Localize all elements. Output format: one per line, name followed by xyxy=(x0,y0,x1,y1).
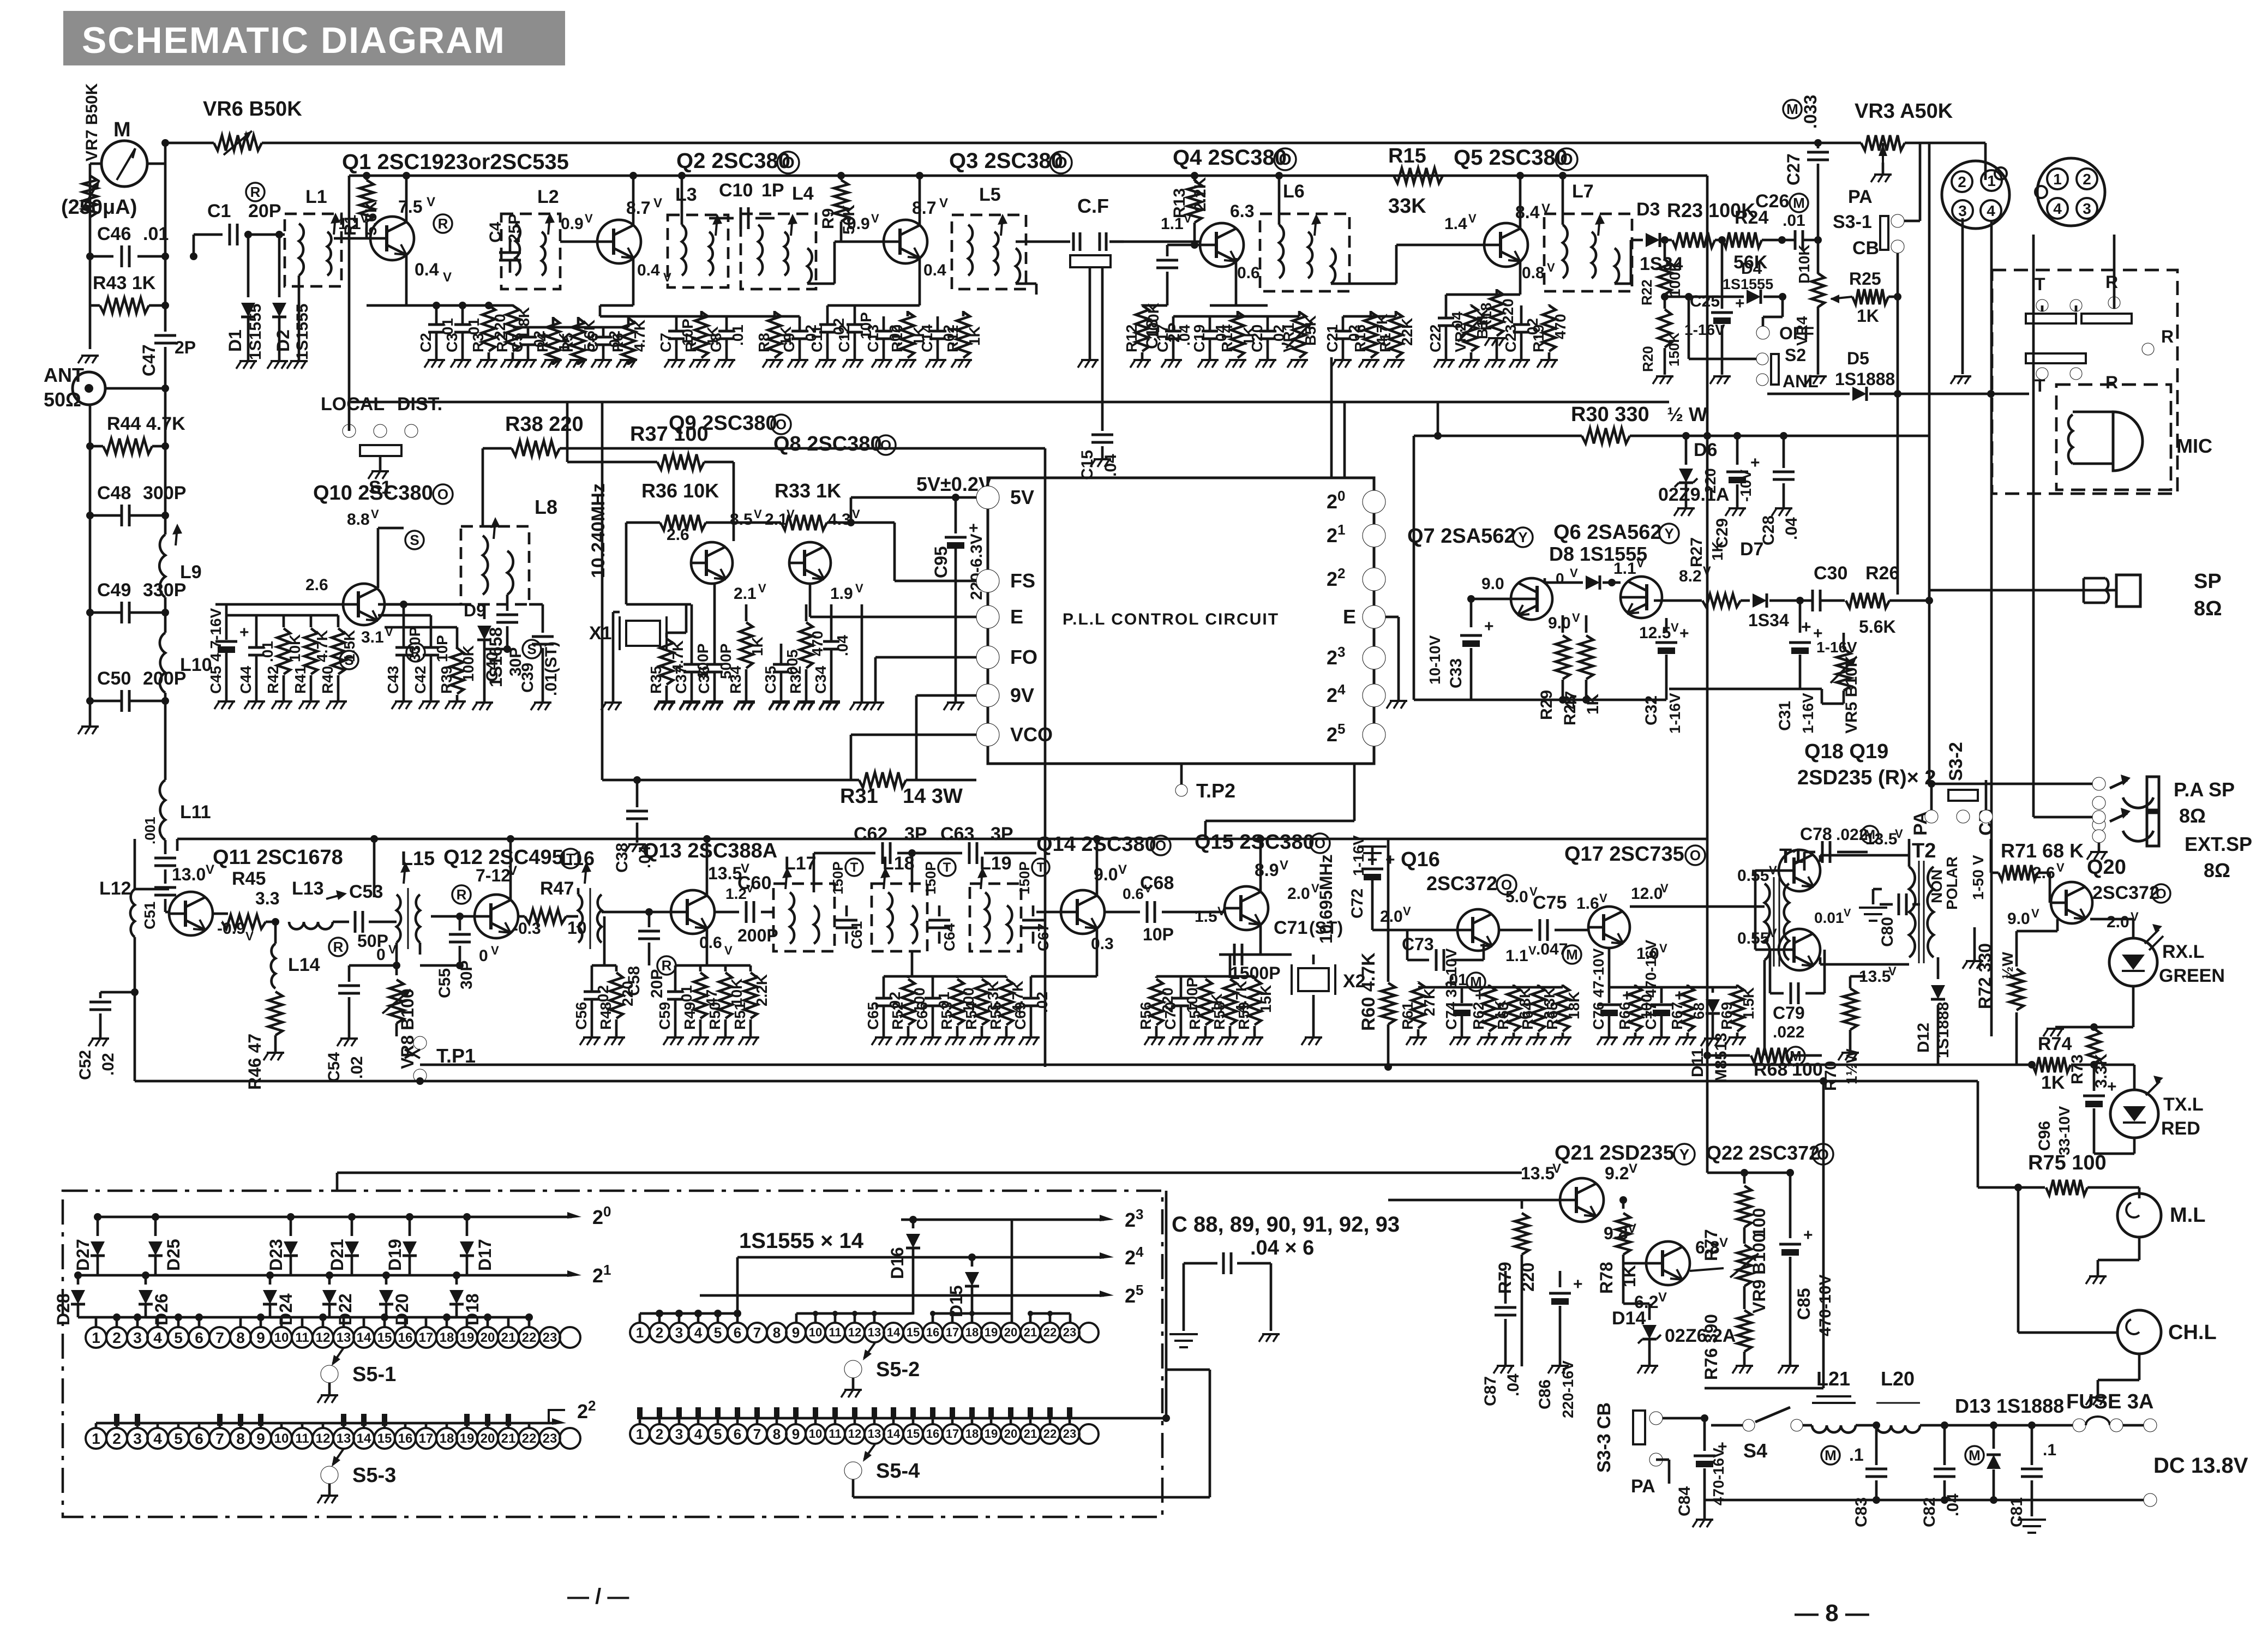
svg-text:16: 16 xyxy=(926,1427,939,1441)
svg-text:L13: L13 xyxy=(292,878,324,899)
svg-text:D21: D21 xyxy=(327,1239,347,1271)
svg-text:17: 17 xyxy=(419,1431,434,1446)
svg-text:C26: C26 xyxy=(1755,191,1789,212)
svg-text:D13 1S1888: D13 1S1888 xyxy=(1955,1395,2064,1417)
svg-text:V: V xyxy=(371,507,379,521)
svg-text:15: 15 xyxy=(377,1330,392,1345)
svg-text:4.3: 4.3 xyxy=(828,511,851,529)
svg-text:C44: C44 xyxy=(237,665,254,694)
svg-text:3.1: 3.1 xyxy=(361,628,384,646)
svg-text:L12: L12 xyxy=(99,878,131,899)
svg-text:C59: C59 xyxy=(656,1002,673,1030)
svg-text:V: V xyxy=(1528,944,1537,957)
svg-text:R: R xyxy=(457,886,467,903)
svg-text:0.55: 0.55 xyxy=(1737,929,1769,947)
svg-text:2.0: 2.0 xyxy=(2107,913,2129,931)
svg-text:C58: C58 xyxy=(625,966,643,996)
svg-text:3P: 3P xyxy=(991,824,1013,844)
svg-text:.04: .04 xyxy=(834,635,851,656)
svg-text:L3: L3 xyxy=(675,184,697,205)
svg-text:R: R xyxy=(438,215,448,232)
svg-text:0.4: 0.4 xyxy=(923,261,946,279)
svg-text:18K: 18K xyxy=(1565,992,1582,1019)
svg-text:4: 4 xyxy=(694,1426,703,1442)
svg-text:1.5K: 1.5K xyxy=(341,630,358,662)
svg-text:V: V xyxy=(1403,904,1411,918)
svg-text:R55: R55 xyxy=(987,1002,1004,1030)
svg-text:220: 220 xyxy=(1499,298,1516,324)
svg-text:20: 20 xyxy=(481,1330,495,1345)
svg-text:+: + xyxy=(1573,1275,1583,1293)
svg-text:R72 330: R72 330 xyxy=(1975,943,1995,1009)
svg-text:13.5: 13.5 xyxy=(1521,1163,1555,1183)
svg-text:R62: R62 xyxy=(1470,1002,1487,1030)
svg-text:C13: C13 xyxy=(865,325,881,352)
svg-text:R45: R45 xyxy=(232,868,266,889)
svg-text:C19: C19 xyxy=(1191,325,1208,352)
svg-text:½ W: ½ W xyxy=(1667,403,1707,425)
svg-text:R71 68 K: R71 68 K xyxy=(2001,839,2084,862)
svg-text:V: V xyxy=(585,212,593,225)
svg-text:V: V xyxy=(852,507,860,521)
svg-text:14: 14 xyxy=(887,1325,901,1339)
svg-text:S3-1: S3-1 xyxy=(1833,212,1872,232)
svg-text:8.8: 8.8 xyxy=(347,511,370,529)
svg-text:22: 22 xyxy=(522,1330,537,1345)
svg-text:SCHEMATIC DIAGRAM: SCHEMATIC DIAGRAM xyxy=(82,20,506,61)
svg-text:.02: .02 xyxy=(1034,992,1051,1013)
svg-text:C38: C38 xyxy=(613,843,631,873)
svg-text:8: 8 xyxy=(236,1430,245,1447)
svg-text:M: M xyxy=(1786,101,1798,117)
svg-text:R73: R73 xyxy=(2068,1054,2086,1084)
svg-text:1S34: 1S34 xyxy=(1748,610,1789,630)
svg-text:Q7 2SA562: Q7 2SA562 xyxy=(1407,525,1516,548)
svg-text:6.3: 6.3 xyxy=(1230,201,1254,221)
svg-text:470-10V: 470-10V xyxy=(1816,1275,1834,1336)
svg-text:DIST.: DIST. xyxy=(397,394,442,415)
svg-text:+: + xyxy=(1750,454,1760,472)
svg-text:20: 20 xyxy=(1004,1427,1017,1441)
svg-text:0.4: 0.4 xyxy=(637,261,660,279)
svg-text:3P: 3P xyxy=(904,824,927,844)
svg-text:C5: C5 xyxy=(509,333,526,352)
svg-text:3: 3 xyxy=(133,1329,142,1346)
svg-text:14: 14 xyxy=(357,1431,371,1446)
svg-text:22: 22 xyxy=(522,1431,537,1446)
svg-text:8.5: 8.5 xyxy=(730,511,753,529)
svg-text:0: 0 xyxy=(1556,570,1564,587)
svg-text:10P: 10P xyxy=(434,635,451,662)
svg-text:30P: 30P xyxy=(458,961,476,989)
svg-text:V: V xyxy=(443,270,452,285)
svg-text:L20: L20 xyxy=(1881,1367,1915,1390)
svg-text:R32: R32 xyxy=(787,666,804,694)
svg-text:22K: 22K xyxy=(1399,318,1415,346)
svg-text:11: 11 xyxy=(829,1427,841,1441)
svg-text:C72: C72 xyxy=(1348,889,1366,919)
svg-text:D10K: D10K xyxy=(1796,244,1813,284)
svg-text:C63: C63 xyxy=(940,824,974,844)
svg-text:10K: 10K xyxy=(286,634,303,662)
svg-text:1S1888: 1S1888 xyxy=(1835,369,1895,389)
svg-text:470: 470 xyxy=(1552,314,1569,339)
svg-text:9: 9 xyxy=(256,1430,265,1447)
svg-text:C62: C62 xyxy=(854,824,887,844)
svg-text:S4: S4 xyxy=(1743,1439,1767,1462)
svg-text:L11: L11 xyxy=(180,802,211,823)
svg-text:1.4: 1.4 xyxy=(1444,215,1467,233)
svg-text:V: V xyxy=(1844,907,1851,919)
svg-text:V: V xyxy=(1658,1290,1667,1305)
svg-text:R44 4.7K: R44 4.7K xyxy=(107,413,185,434)
svg-text:-10V: -10V xyxy=(1737,470,1754,502)
svg-text:R22: R22 xyxy=(1639,279,1655,305)
svg-text:1K: 1K xyxy=(1857,306,1879,326)
svg-text:2.0: 2.0 xyxy=(1380,908,1403,926)
svg-text:21: 21 xyxy=(1024,1325,1037,1339)
svg-text:0.3: 0.3 xyxy=(1091,935,1114,953)
svg-text:FO: FO xyxy=(1010,646,1037,668)
svg-text:Q22 2SC372: Q22 2SC372 xyxy=(1706,1142,1820,1164)
svg-text:R: R xyxy=(2105,373,2118,392)
svg-text:14: 14 xyxy=(887,1427,901,1441)
svg-text:1.1: 1.1 xyxy=(1505,947,1528,965)
svg-text:470-16V: 470-16V xyxy=(1710,1448,1727,1505)
svg-text:VR4: VR4 xyxy=(1793,316,1810,346)
svg-text:17: 17 xyxy=(419,1330,434,1345)
svg-text:10: 10 xyxy=(809,1325,822,1339)
svg-text:3: 3 xyxy=(133,1430,142,1447)
svg-text:R: R xyxy=(662,957,672,974)
svg-text:M: M xyxy=(1793,195,1805,211)
svg-text:20P: 20P xyxy=(248,201,281,221)
svg-text:S: S xyxy=(410,532,419,548)
svg-text:VR3 A50K: VR3 A50K xyxy=(1855,100,1953,123)
svg-text:V: V xyxy=(1659,941,1667,955)
svg-text:R43 1K: R43 1K xyxy=(93,273,156,293)
svg-text:R8: R8 xyxy=(755,333,772,352)
svg-text:R54: R54 xyxy=(963,1001,980,1030)
svg-text:C14: C14 xyxy=(919,324,935,352)
svg-text:220: 220 xyxy=(1702,468,1719,494)
svg-text:T: T xyxy=(2035,376,2045,395)
svg-text:100K: 100K xyxy=(1666,261,1683,297)
svg-text:R34: R34 xyxy=(727,665,744,694)
svg-text:V: V xyxy=(1280,858,1288,873)
svg-text:0.9: 0.9 xyxy=(561,215,584,233)
svg-text:O: O xyxy=(1315,835,1325,851)
svg-text:50Ω: 50Ω xyxy=(44,388,81,411)
svg-text:4: 4 xyxy=(153,1430,162,1447)
svg-text:L14: L14 xyxy=(288,955,320,975)
svg-text:5: 5 xyxy=(714,1324,722,1341)
svg-text:18: 18 xyxy=(965,1427,979,1441)
svg-text:V: V xyxy=(206,862,214,877)
svg-text:220-16V: 220-16V xyxy=(1559,1360,1576,1418)
svg-text:C61: C61 xyxy=(848,921,865,949)
svg-text:12: 12 xyxy=(848,1325,861,1339)
svg-text:T.P2: T.P2 xyxy=(1196,779,1235,802)
svg-text:D27: D27 xyxy=(73,1239,93,1271)
svg-text:V: V xyxy=(1552,1161,1561,1176)
svg-text:2.1: 2.1 xyxy=(765,511,788,529)
svg-text:R69: R69 xyxy=(1718,1002,1735,1030)
svg-text:EXT.SP: EXT.SP xyxy=(2185,833,2252,855)
svg-text:R: R xyxy=(2105,272,2118,292)
svg-text:23: 23 xyxy=(543,1330,557,1345)
svg-text:V: V xyxy=(2131,910,2139,923)
svg-text:100: 100 xyxy=(1749,1208,1769,1237)
svg-text:C52: C52 xyxy=(76,1050,94,1080)
svg-text:13.5: 13.5 xyxy=(708,863,742,883)
svg-text:O: O xyxy=(1054,154,1067,172)
svg-text:9V: 9V xyxy=(1010,684,1034,706)
svg-text:C17: C17 xyxy=(1154,325,1171,352)
svg-text:D3: D3 xyxy=(1636,199,1660,220)
svg-text:15: 15 xyxy=(907,1325,920,1339)
svg-text:8.7: 8.7 xyxy=(912,198,936,218)
svg-text:— 8 —: — 8 — xyxy=(1795,1600,1869,1627)
svg-text:C69: C69 xyxy=(1012,1002,1029,1030)
svg-text:R7: R7 xyxy=(682,333,699,352)
svg-text:Q8 2SC380: Q8 2SC380 xyxy=(773,433,882,455)
svg-text:.001: .001 xyxy=(142,817,158,844)
svg-text:R: R xyxy=(411,644,421,661)
svg-text:12.0: 12.0 xyxy=(1631,885,1663,903)
svg-text:R33 1K: R33 1K xyxy=(775,479,841,502)
svg-text:15: 15 xyxy=(907,1427,920,1441)
svg-text:D19: D19 xyxy=(385,1239,405,1271)
svg-text:C27: C27 xyxy=(1784,153,1803,185)
svg-text:PA: PA xyxy=(1848,187,1873,207)
svg-text:12: 12 xyxy=(316,1431,331,1446)
svg-text:2.6: 2.6 xyxy=(2032,864,2055,882)
svg-text:C84: C84 xyxy=(1676,1486,1694,1516)
svg-text:14: 14 xyxy=(357,1330,371,1345)
svg-text:15K: 15K xyxy=(1257,985,1274,1013)
svg-text:V: V xyxy=(1468,212,1477,225)
svg-text:7: 7 xyxy=(215,1430,224,1447)
svg-text:10.695MHz: 10.695MHz xyxy=(1316,854,1336,944)
svg-text:11: 11 xyxy=(829,1325,841,1339)
svg-text:R15: R15 xyxy=(1388,145,1426,167)
svg-text:V: V xyxy=(1769,926,1777,940)
svg-text:D28: D28 xyxy=(53,1293,73,1325)
svg-text:C25: C25 xyxy=(1690,292,1720,310)
svg-text:2: 2 xyxy=(1958,173,1966,190)
svg-text:C35: C35 xyxy=(762,666,779,694)
svg-text:22: 22 xyxy=(1043,1325,1057,1339)
svg-text:1K: 1K xyxy=(749,637,766,656)
svg-text:C71: C71 xyxy=(1274,917,1307,938)
svg-text:D14: D14 xyxy=(1612,1308,1646,1329)
svg-text:9: 9 xyxy=(792,1324,800,1341)
svg-text:R35: R35 xyxy=(647,666,664,694)
svg-text:R74: R74 xyxy=(2038,1034,2072,1054)
svg-text:+: + xyxy=(1484,617,1494,635)
svg-text:V: V xyxy=(1118,862,1127,877)
svg-text:D23: D23 xyxy=(266,1239,286,1271)
svg-text:1: 1 xyxy=(636,1426,644,1442)
svg-text:Q17 2SC735: Q17 2SC735 xyxy=(1564,843,1684,866)
svg-text:P.L.L CONTROL CIRCUIT: P.L.L CONTROL CIRCUIT xyxy=(1063,610,1279,628)
svg-text:O: O xyxy=(2156,886,2166,902)
svg-text:C54: C54 xyxy=(325,1052,343,1082)
svg-text:V: V xyxy=(491,944,499,957)
svg-text:V: V xyxy=(939,196,948,211)
svg-text:C.F: C.F xyxy=(1077,195,1109,217)
svg-text:R20: R20 xyxy=(1640,346,1656,372)
svg-text:V: V xyxy=(1629,1161,1637,1176)
svg-text:SP: SP xyxy=(2194,570,2222,593)
svg-text:R16: R16 xyxy=(1352,325,1369,352)
svg-text:FUSE 3A: FUSE 3A xyxy=(2066,1390,2153,1413)
svg-text:9.0: 9.0 xyxy=(1481,575,1504,593)
svg-text:C47: C47 xyxy=(139,344,159,376)
svg-text:150P: 150P xyxy=(830,861,846,895)
svg-text:Q1 2SC1923or2SC535: Q1 2SC1923or2SC535 xyxy=(342,150,569,174)
svg-text:S3-2: S3-2 xyxy=(1946,742,1966,781)
svg-text:10-10V: 10-10V xyxy=(1426,635,1443,685)
svg-text:POLAR: POLAR xyxy=(1943,856,1960,910)
svg-text:8.2: 8.2 xyxy=(1679,567,1702,585)
svg-text:C22: C22 xyxy=(1427,325,1444,352)
svg-text:9.2: 9.2 xyxy=(1605,1163,1629,1183)
svg-text:10: 10 xyxy=(274,1330,289,1345)
svg-text:5.6K: 5.6K xyxy=(1859,617,1896,637)
svg-text:2.6: 2.6 xyxy=(305,576,328,594)
svg-text:1: 1 xyxy=(2053,171,2062,188)
svg-text:C76 47-10V: C76 47-10V xyxy=(1590,948,1607,1030)
svg-text:O: O xyxy=(1690,847,1701,863)
svg-text:C33: C33 xyxy=(1447,658,1465,688)
svg-text:C1: C1 xyxy=(207,201,231,221)
svg-text:Q16: Q16 xyxy=(1401,848,1440,871)
svg-text:18: 18 xyxy=(440,1431,454,1446)
svg-text:R59: R59 xyxy=(1235,1002,1252,1030)
svg-text:R12: R12 xyxy=(1123,325,1140,352)
svg-text:ANL: ANL xyxy=(1783,371,1819,391)
svg-text:1-16V: 1-16V xyxy=(1684,321,1725,338)
svg-text:Q9 2SC380: Q9 2SC380 xyxy=(669,412,777,435)
svg-text:RX.L: RX.L xyxy=(2162,941,2204,962)
svg-text:R26: R26 xyxy=(1865,563,1899,584)
svg-text:D20: D20 xyxy=(392,1293,412,1325)
svg-text:R6: R6 xyxy=(609,333,626,352)
svg-text:+: + xyxy=(1803,1226,1813,1244)
svg-text:D12: D12 xyxy=(1915,1023,1933,1053)
svg-text:C15: C15 xyxy=(1078,450,1096,480)
svg-text:VR5 B10K: VR5 B10K xyxy=(1843,655,1861,734)
svg-text:1.9: 1.9 xyxy=(830,585,853,603)
svg-text:DC 13.8V: DC 13.8V xyxy=(2153,1454,2248,1478)
svg-text:33K: 33K xyxy=(1388,195,1426,218)
svg-text:VR2: VR2 xyxy=(1452,323,1469,352)
svg-text:C64: C64 xyxy=(941,923,958,951)
svg-text:S5-3: S5-3 xyxy=(352,1464,396,1487)
svg-text:Q20: Q20 xyxy=(2087,856,2126,879)
svg-text:L18: L18 xyxy=(883,853,915,874)
svg-text:13: 13 xyxy=(337,1330,351,1345)
svg-text:9.0: 9.0 xyxy=(1548,614,1571,632)
svg-text:R31: R31 xyxy=(840,785,878,808)
svg-text:C20: C20 xyxy=(1249,325,1265,352)
svg-text:T: T xyxy=(943,860,951,875)
svg-text:3: 3 xyxy=(1958,202,1967,219)
svg-text:R77: R77 xyxy=(1701,1229,1721,1261)
svg-text:1: 1 xyxy=(92,1430,100,1447)
svg-text:R50: R50 xyxy=(706,1002,723,1030)
svg-text:C40: C40 xyxy=(483,652,501,682)
svg-text:VR9 B100: VR9 B100 xyxy=(1749,1233,1769,1313)
svg-text:D1: D1 xyxy=(225,329,245,352)
svg-text:Y: Y xyxy=(1679,1146,1690,1163)
svg-text:R3: R3 xyxy=(470,333,487,352)
svg-text:D7: D7 xyxy=(1740,539,1763,560)
svg-text:V: V xyxy=(1547,261,1555,274)
svg-text:Y: Y xyxy=(1518,529,1527,545)
svg-text:V: V xyxy=(724,944,733,957)
svg-text:19: 19 xyxy=(460,1431,475,1446)
svg-text:S5-2: S5-2 xyxy=(876,1358,920,1381)
svg-text:200P: 200P xyxy=(737,926,778,945)
svg-text:D6: D6 xyxy=(1694,440,1717,460)
svg-text:M: M xyxy=(1790,1048,1802,1064)
svg-text:CH.L: CH.L xyxy=(2168,1321,2217,1344)
svg-text:1K: 1K xyxy=(2041,1072,2065,1093)
svg-text:2: 2 xyxy=(2083,171,2091,188)
svg-text:V: V xyxy=(758,581,766,595)
svg-text:0.01: 0.01 xyxy=(1814,909,1844,926)
svg-text:C39: C39 xyxy=(519,663,537,693)
svg-text:L21: L21 xyxy=(1816,1367,1850,1390)
svg-text:R61: R61 xyxy=(1399,1002,1416,1030)
svg-text:4: 4 xyxy=(153,1329,162,1346)
svg-text:O: O xyxy=(1560,151,1573,169)
svg-text:2: 2 xyxy=(656,1426,663,1442)
svg-text:Q2 2SC380: Q2 2SC380 xyxy=(676,149,790,173)
svg-text:R75 100: R75 100 xyxy=(2028,1151,2107,1174)
svg-text:R17: R17 xyxy=(1377,325,1394,352)
svg-text:1: 1 xyxy=(636,1324,644,1341)
svg-text:O: O xyxy=(782,154,794,172)
svg-text:C43: C43 xyxy=(385,666,401,694)
svg-text:R19: R19 xyxy=(1530,325,1547,352)
svg-text:5: 5 xyxy=(174,1430,183,1447)
svg-text:8Ω: 8Ω xyxy=(2204,859,2230,881)
svg-text:6: 6 xyxy=(734,1324,741,1341)
svg-text:S5-4: S5-4 xyxy=(876,1460,920,1483)
svg-text:Q3 2SC380: Q3 2SC380 xyxy=(949,149,1063,173)
svg-text:1K: 1K xyxy=(1709,541,1726,561)
svg-text:VCO: VCO xyxy=(1010,723,1053,746)
svg-text:8Ω: 8Ω xyxy=(2194,597,2222,620)
svg-text:L6: L6 xyxy=(1283,181,1305,202)
svg-text:C30: C30 xyxy=(1814,563,1847,584)
svg-text:C2: C2 xyxy=(417,333,434,352)
svg-text:02Z6.2A: 02Z6.2A xyxy=(1665,1325,1736,1346)
svg-text:1-50 V: 1-50 V xyxy=(1970,855,1987,900)
svg-text:1S1555: 1S1555 xyxy=(1723,276,1773,292)
svg-text:L1: L1 xyxy=(305,187,327,207)
svg-text:R36 10K: R36 10K xyxy=(641,479,719,502)
svg-text:20: 20 xyxy=(1004,1325,1017,1339)
svg-text:Q4 2SC380: Q4 2SC380 xyxy=(1173,146,1287,170)
svg-text:C86: C86 xyxy=(1536,1379,1554,1409)
svg-text:25P: 25P xyxy=(506,214,524,243)
svg-text:L16: L16 xyxy=(561,847,595,869)
